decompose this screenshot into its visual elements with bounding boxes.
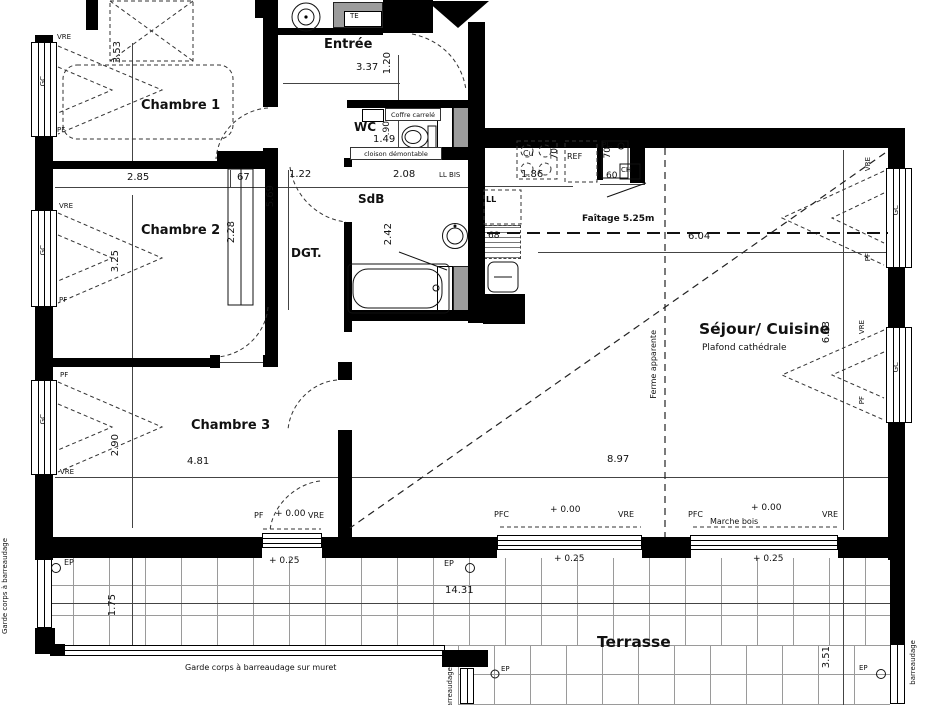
label-ep-1: EP	[64, 559, 74, 567]
railing	[60, 645, 445, 656]
wall	[338, 430, 352, 537]
label-vre-w3: VRE	[60, 469, 74, 476]
wall	[35, 137, 53, 210]
wall	[345, 310, 483, 321]
window	[31, 210, 57, 307]
wall	[275, 28, 383, 35]
note-barreaudage-center: barreaudage	[447, 667, 454, 705]
label-zero-s1: + 0.00	[550, 506, 580, 515]
label-pf-c3: PF	[254, 512, 263, 520]
room-label-sdb: SdB	[358, 193, 384, 206]
wall	[890, 558, 905, 644]
label-vre-e2: VRE	[859, 320, 866, 334]
label-pf-w3: PF	[60, 372, 68, 379]
wall	[642, 537, 691, 558]
dim-604: 6.04	[688, 232, 710, 243]
note-barreaudage-right: barreaudage	[910, 640, 917, 685]
label-pf-e2: PF	[859, 396, 866, 404]
wall	[482, 128, 905, 148]
label-vre-s2: VRE	[822, 511, 838, 519]
wall	[217, 151, 278, 161]
coffre-carrele-box: Coffre carrelé	[385, 108, 441, 121]
label-pf-w1: PF	[57, 127, 65, 134]
dim-1431: 14.31	[445, 586, 474, 597]
dim-175: 1.75	[108, 594, 119, 616]
label-ref: REF	[567, 153, 582, 161]
dim-208: 2.08	[393, 170, 415, 181]
window	[31, 42, 57, 137]
railing	[890, 644, 905, 704]
label-ep-3: EP	[501, 666, 510, 673]
note-plafond: Plafond cathédrale	[702, 344, 787, 353]
note-garde-left: Garde corps à barreaudage	[2, 538, 9, 634]
cloison-demontable-box: cloison démontable	[350, 147, 442, 160]
room-label-chambre1: Chambre 1	[141, 99, 220, 113]
room-label-wc: WC	[354, 121, 376, 134]
dim-242: 2.42	[384, 223, 395, 245]
dim-228: 2.28	[227, 221, 238, 243]
bathroom-sink-icon	[443, 224, 468, 249]
label-vre-w2: VRE	[59, 203, 73, 210]
wall	[888, 268, 905, 327]
wall	[630, 142, 645, 183]
coffre-label: Coffre carrelé	[391, 111, 435, 119]
label-plus25-s1: + 0.25	[554, 555, 584, 564]
dim-337: 3.37	[356, 63, 378, 74]
dimension-line	[230, 170, 231, 188]
label-plus25-s2: + 0.25	[753, 555, 783, 564]
sliding-door	[690, 535, 838, 550]
wall	[51, 358, 216, 367]
wall	[888, 148, 905, 168]
dishwasher-icon	[488, 262, 518, 292]
dim-186: 1.86	[521, 170, 543, 181]
dimension-line	[132, 366, 133, 528]
label-gc-e2: GC	[893, 362, 900, 372]
dimension-line	[485, 186, 573, 187]
note-ferme: Ferme apparente	[650, 330, 658, 399]
ceiling-fixture-icon	[292, 3, 320, 31]
note-garde-muret: Garde corps à barreaudage sur muret	[185, 664, 336, 672]
wall	[344, 310, 352, 332]
label-zero-s2: + 0.00	[751, 504, 781, 513]
window	[886, 168, 912, 268]
dim-353: 3.53	[113, 41, 124, 63]
dim-149: 1.49	[373, 135, 395, 146]
dim-569: 5.69	[266, 185, 277, 207]
note-marche: Marche bois	[708, 518, 760, 526]
wall	[344, 222, 352, 312]
dimension-line	[37, 603, 905, 604]
label-vre-e1: VRE	[865, 157, 872, 171]
room-label-dgt: DGT.	[291, 247, 322, 260]
dim-67: 67	[237, 173, 250, 184]
dim-325: 3.25	[111, 250, 122, 272]
label-gc-w3: GC	[40, 414, 47, 424]
dim-90: .90	[383, 121, 392, 135]
bathtub-icon	[348, 264, 449, 313]
dimension-line	[132, 195, 133, 358]
dimension-line	[132, 558, 133, 646]
wall	[210, 355, 220, 368]
label-vre-c3: VRE	[308, 512, 324, 520]
wall	[442, 650, 488, 667]
window	[31, 380, 57, 475]
window	[886, 327, 912, 423]
wall	[383, 0, 433, 33]
sliding-door	[262, 533, 322, 548]
railing	[37, 558, 52, 628]
dim-897: 8.97	[607, 455, 629, 466]
label-ll: LL	[486, 196, 496, 204]
dim-70b: 70	[604, 147, 613, 158]
label-vre-w1: VRE	[57, 34, 71, 41]
terrace-tile-grid	[37, 558, 905, 646]
label-ep-2: EP	[444, 560, 454, 568]
note-faitage: Faîtage 5.25m	[582, 215, 654, 224]
dimension-line	[843, 150, 844, 530]
wall	[35, 35, 53, 42]
dim-70a: 70	[551, 148, 560, 159]
room-label-chambre3: Chambre 3	[191, 419, 270, 433]
label-pfc-s2: PFC	[688, 511, 703, 519]
label-ch: CH	[621, 167, 631, 174]
sliding-door	[497, 535, 642, 550]
wall	[838, 537, 905, 558]
label-ll-bis: LL BIS	[439, 172, 460, 179]
service-box	[437, 266, 453, 312]
dim-122: 1.22	[289, 170, 311, 181]
dimension-line	[132, 43, 133, 162]
dimension-line	[55, 477, 888, 478]
dim-290: 2.90	[111, 434, 122, 456]
wall	[263, 355, 278, 367]
wall	[35, 307, 53, 380]
cloison-label: cloison démontable	[364, 150, 428, 158]
label-gc-e1: GC	[893, 205, 900, 215]
label-te: TE	[350, 13, 359, 20]
dimension-line	[538, 252, 888, 253]
dimension-line	[216, 362, 265, 363]
duct	[453, 266, 469, 312]
dim-120: 1.20	[383, 52, 394, 74]
wall	[338, 362, 352, 380]
room-label-entree: Entrée	[324, 38, 372, 52]
room-label-terrasse: Terrasse	[597, 634, 671, 650]
label-vre-s1: VRE	[618, 511, 634, 519]
dim-60: 60	[606, 172, 617, 181]
roof-diagonal	[350, 153, 885, 528]
wall	[468, 22, 485, 323]
wall	[347, 100, 473, 108]
label-ep-4: EP	[859, 665, 868, 672]
label-pf-w2: PF	[59, 297, 67, 304]
dimension-line	[600, 184, 645, 185]
wall	[483, 294, 525, 324]
wall	[51, 161, 278, 169]
label-gc-w1: GC	[40, 76, 47, 86]
dimension-line	[843, 558, 844, 705]
dimension-line	[288, 170, 289, 310]
room-label-sejour: Séjour/ Cuisine	[699, 321, 830, 337]
wall	[322, 537, 497, 558]
label-plus25-c3: + 0.25	[269, 557, 299, 566]
wall	[50, 644, 65, 656]
floor-plan: Coffre carrelé cloison démontable	[0, 0, 940, 705]
dim-663: 6.63	[822, 321, 833, 343]
dim-285: 2.85	[127, 173, 149, 184]
dim-351: 3.51	[822, 646, 833, 668]
dim-481: 4.81	[187, 457, 209, 468]
room-label-chambre2: Chambre 2	[141, 224, 220, 238]
dim-68: 68	[488, 232, 499, 241]
dimension-line	[55, 187, 470, 188]
label-pfc-s1: PFC	[494, 511, 509, 519]
dimension-line	[283, 83, 400, 84]
label-pf-e1: PF	[865, 253, 872, 261]
wall	[35, 537, 262, 558]
label-gc-w2: GC	[40, 245, 47, 255]
label-cu: Cu	[523, 150, 534, 158]
label-zero-c3: + 0.00	[275, 510, 305, 519]
wall	[263, 0, 278, 107]
railing	[460, 668, 474, 704]
toilet-icon	[402, 126, 436, 148]
wall	[86, 0, 98, 30]
